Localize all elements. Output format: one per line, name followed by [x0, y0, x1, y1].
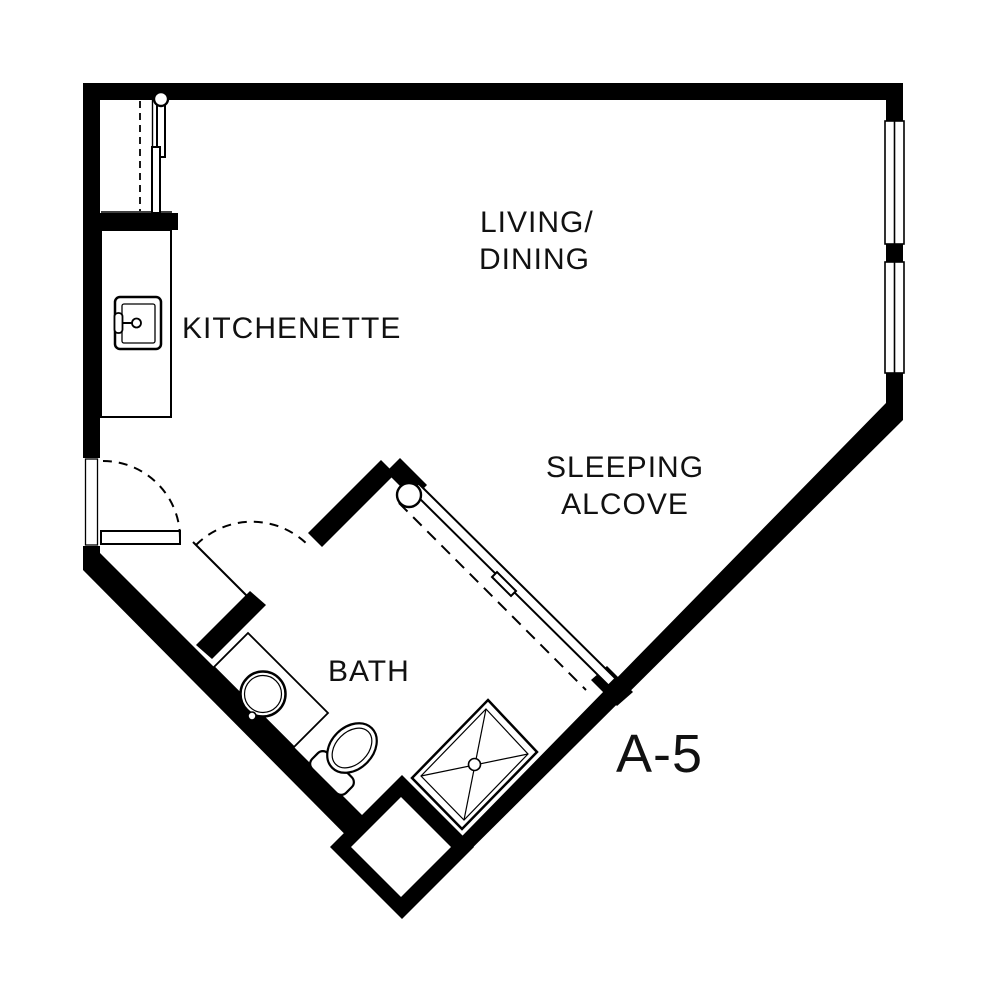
living-dining-label-line1: LIVING/: [480, 206, 594, 239]
sleeping-alcove-label-line1: SLEEPING: [546, 451, 704, 484]
sliding-door-roller-icon: [397, 483, 421, 507]
closet-partition-wall: [83, 213, 178, 230]
kitchenette-label: KITCHENETTE: [182, 312, 401, 345]
entry-door-leaf: [101, 531, 180, 544]
closet-door-pull-icon: [154, 92, 168, 106]
floor-plan-drawing: LIVING/ DINING KITCHENETTE SLEEPING ALCO…: [0, 0, 989, 998]
floor-plan-page: LIVING/ DINING KITCHENETTE SLEEPING ALCO…: [0, 0, 989, 998]
window-lower: [885, 262, 904, 373]
closet-door-panel-b: [152, 147, 160, 213]
sleeping-alcove-label-line2: ALCOVE: [561, 488, 689, 521]
living-dining-label-line2: DINING: [479, 243, 590, 276]
bath-label: BATH: [328, 655, 410, 688]
kitchenette-counter: [101, 230, 171, 417]
unit-number-label: A-5: [616, 724, 703, 784]
kitchen-sink-icon: [115, 297, 162, 349]
window-upper: [885, 121, 904, 244]
